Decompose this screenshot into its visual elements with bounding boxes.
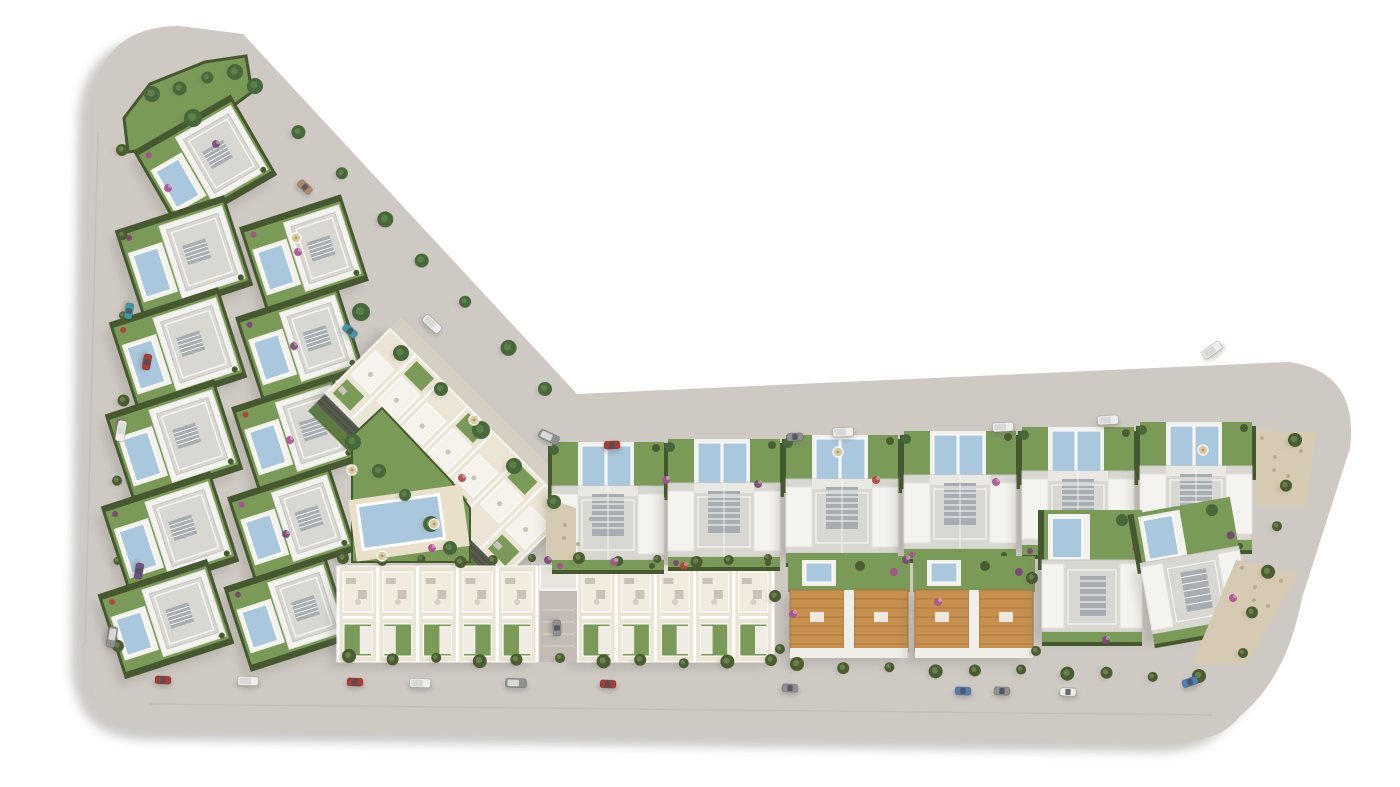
- flowering-shrub: [754, 480, 762, 488]
- flowering-shrub: [680, 562, 688, 570]
- flowering-shrub: [902, 556, 910, 564]
- umbrella: [377, 551, 387, 561]
- terracotta-duplex: [906, 556, 1035, 664]
- umbrella: [833, 447, 843, 457]
- right-villa: [1033, 510, 1142, 646]
- flowering-shrub: [544, 556, 552, 564]
- flowering-shrub: [610, 558, 618, 566]
- flowering-shrub: [872, 476, 880, 484]
- flowering-shrub: [789, 610, 797, 618]
- flowering-shrub: [286, 436, 294, 444]
- umbrella: [291, 233, 301, 243]
- entrance-lane: [540, 566, 577, 662]
- umbrella: [469, 415, 479, 425]
- big-villa: [895, 431, 1020, 563]
- umbrella: [347, 465, 357, 475]
- terracotta-duplex: [781, 556, 910, 664]
- umbrella: [429, 519, 439, 529]
- flowering-shrub: [294, 248, 302, 256]
- townhouse-block: [568, 566, 773, 668]
- flowering-shrub: [428, 544, 436, 552]
- big-villa: [659, 439, 784, 571]
- flowering-shrub: [1102, 636, 1110, 644]
- flowering-shrub: [164, 184, 172, 192]
- flowering-shrub: [934, 598, 942, 606]
- flowering-shrub: [992, 478, 1000, 486]
- flowering-shrub: [290, 342, 298, 350]
- site-plan-svg: [0, 0, 1400, 787]
- flowering-shrub: [662, 476, 670, 484]
- masterplan-canvas: [0, 0, 1400, 787]
- scene-root: [71, 26, 1351, 752]
- flowering-shrub: [212, 140, 220, 148]
- flowering-shrub: [1229, 594, 1237, 602]
- umbrella: [1198, 445, 1208, 455]
- flowering-shrub: [282, 530, 290, 538]
- townhouse-block: [329, 566, 537, 668]
- car-white: [1199, 339, 1227, 364]
- flowering-shrub: [458, 474, 466, 482]
